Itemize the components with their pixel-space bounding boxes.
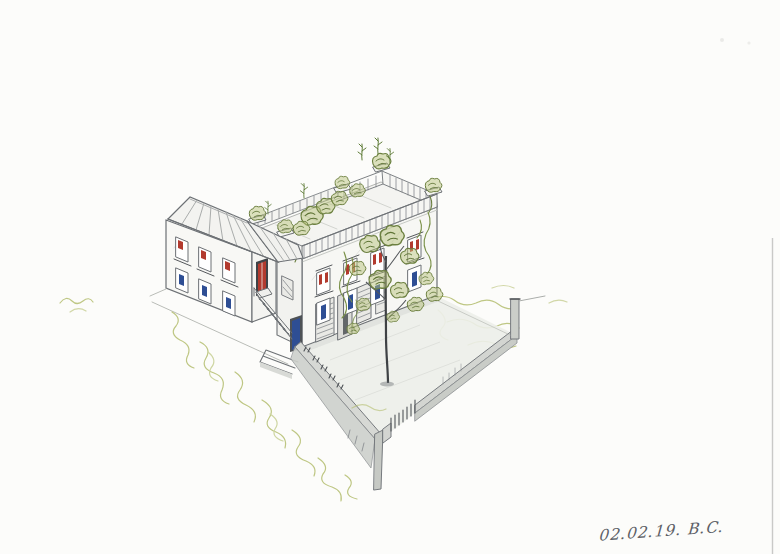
scanned-sketch-page: 02.02.19. B.C.	[0, 0, 780, 554]
scan-artifacts	[720, 38, 773, 554]
sketch-canvas	[0, 0, 780, 554]
